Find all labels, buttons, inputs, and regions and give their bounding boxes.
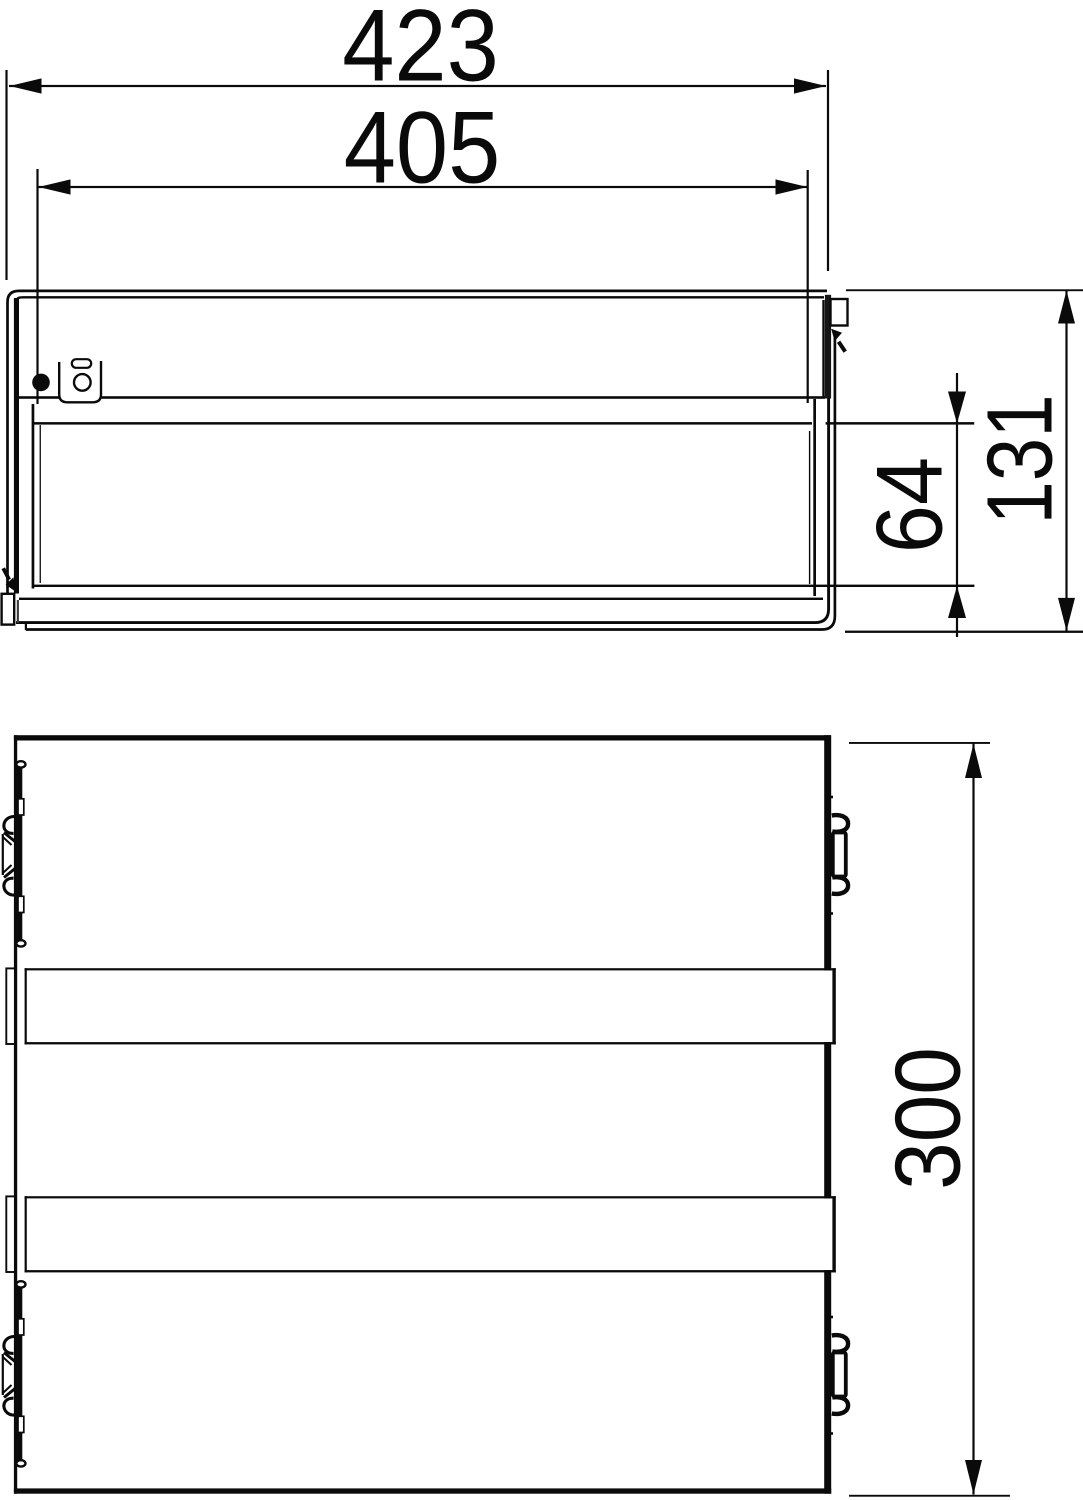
svg-text:423: 423 [342, 0, 499, 102]
svg-text:64: 64 [857, 457, 962, 553]
svg-text:300: 300 [875, 1047, 979, 1190]
svg-text:405: 405 [344, 90, 501, 204]
svg-text:131: 131 [968, 394, 1072, 524]
